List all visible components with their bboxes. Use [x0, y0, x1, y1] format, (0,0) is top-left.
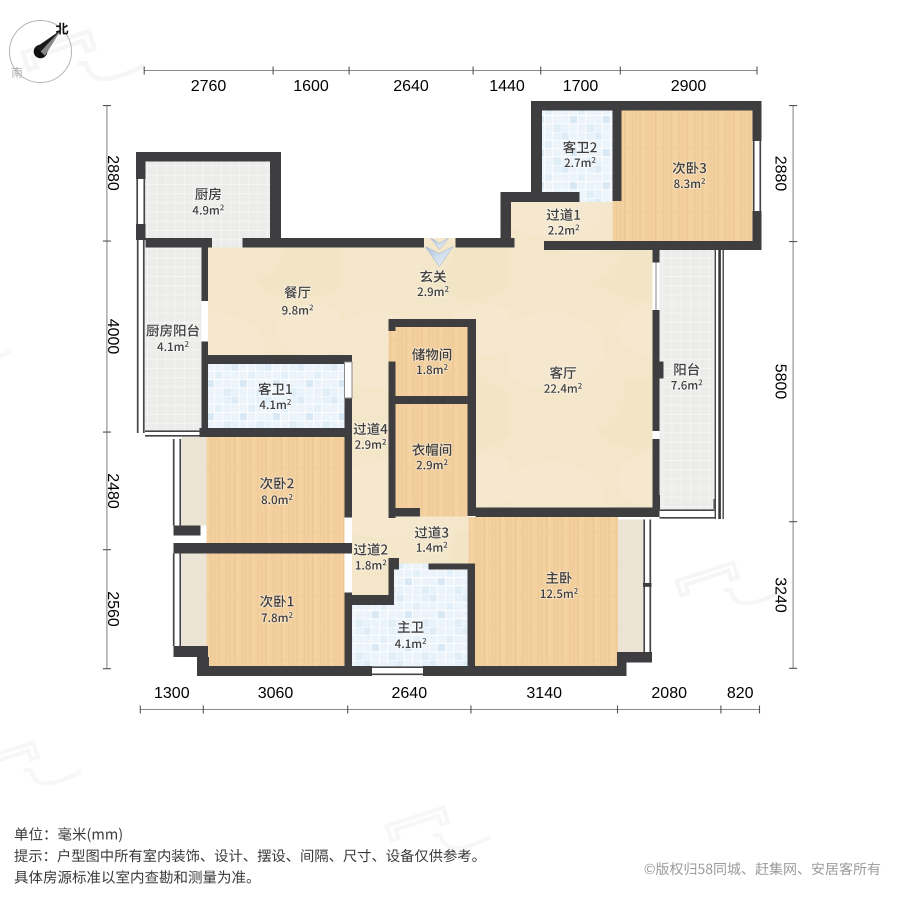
svg-text:1600: 1600 — [293, 78, 329, 95]
svg-text:1300: 1300 — [154, 685, 190, 702]
svg-text:2640: 2640 — [393, 78, 429, 95]
svg-text:820: 820 — [727, 685, 754, 702]
svg-text:2880: 2880 — [772, 156, 789, 192]
svg-text:2880: 2880 — [104, 155, 121, 191]
svg-text:1700: 1700 — [563, 78, 599, 95]
svg-text:2640: 2640 — [392, 685, 428, 702]
svg-text:2080: 2080 — [651, 685, 687, 702]
svg-text:5800: 5800 — [772, 364, 789, 400]
svg-text:2760: 2760 — [191, 78, 227, 95]
svg-text:2560: 2560 — [104, 591, 121, 627]
svg-text:3140: 3140 — [526, 685, 562, 702]
svg-text:4000: 4000 — [104, 319, 121, 355]
svg-text:2900: 2900 — [671, 78, 707, 95]
svg-text:1440: 1440 — [489, 78, 525, 95]
svg-text:3060: 3060 — [258, 685, 294, 702]
svg-text:2480: 2480 — [104, 473, 121, 509]
svg-text:3240: 3240 — [772, 577, 789, 613]
